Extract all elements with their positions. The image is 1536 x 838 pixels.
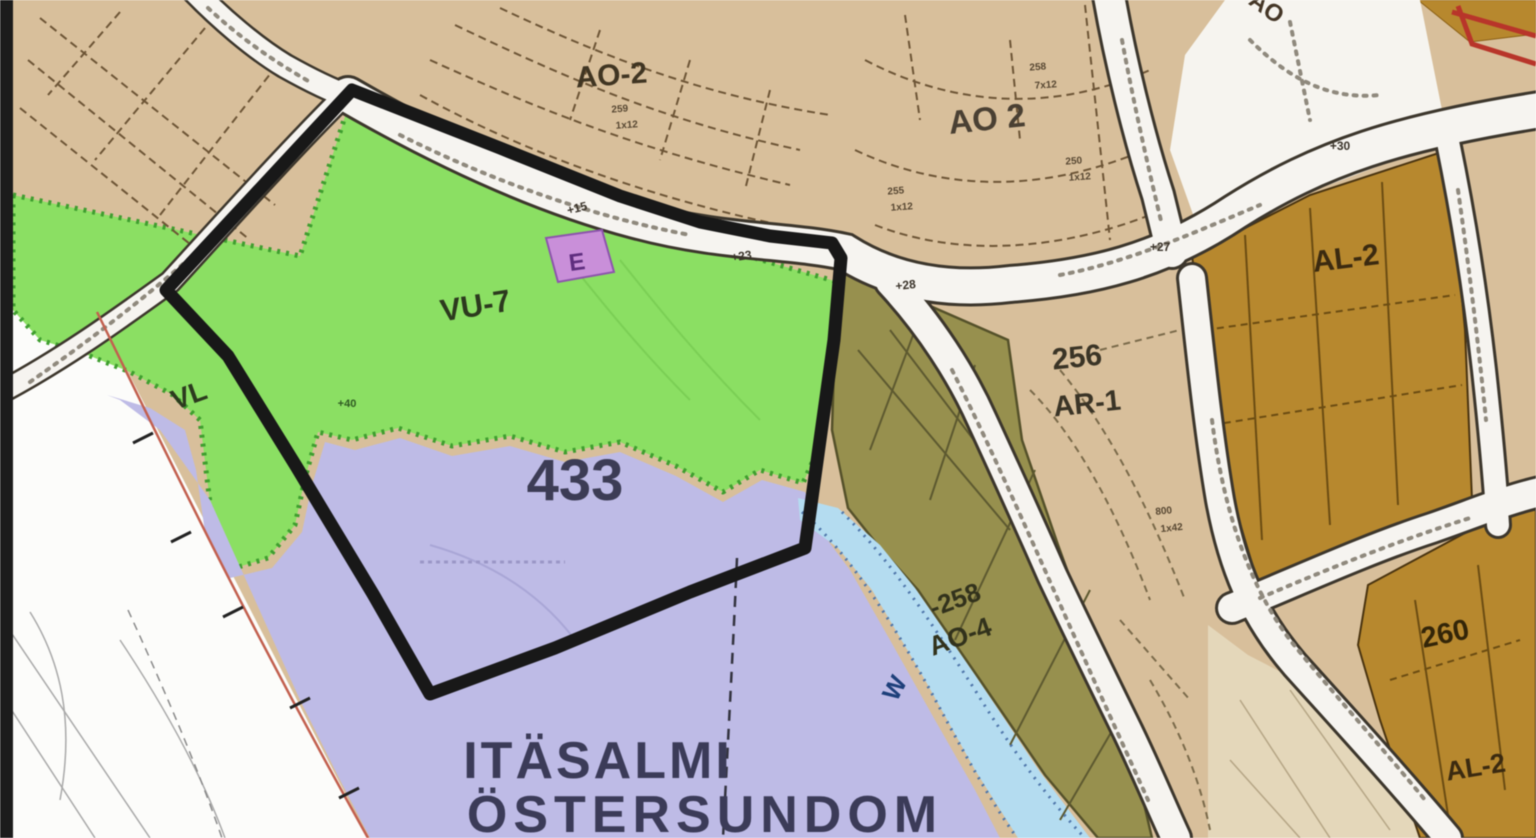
parcel-code: 1x12 xyxy=(1068,171,1091,184)
map-edge-strip xyxy=(0,0,13,838)
label-256: 256 xyxy=(1050,339,1103,377)
parcel-code: 250 xyxy=(1065,155,1083,167)
elevation-marker: +23 xyxy=(730,248,752,265)
parcel-code: 1x12 xyxy=(890,201,913,214)
elevation-marker: +27 xyxy=(1150,240,1171,254)
label-itasalmi: ITÄSALMI xyxy=(463,732,733,790)
parcel-code: 258 xyxy=(1029,61,1047,73)
label-ostersundom: ÖSTERSUNDOM xyxy=(467,786,943,838)
parcel-code: 800 xyxy=(1155,505,1173,518)
parcel-code: 7x12 xyxy=(1034,79,1057,92)
zoning-map-canvas[interactable]: AO-2 AO 2 VU-7 VL 433 256 AR-1 -258 AO-4… xyxy=(0,0,1536,838)
label-district-433: 433 xyxy=(527,448,624,513)
map-svg: AO-2 AO 2 VU-7 VL 433 256 AR-1 -258 AO-4… xyxy=(0,0,1536,838)
label-ao2-west: AO-2 xyxy=(574,57,648,95)
parcel-code: 259 xyxy=(611,103,629,115)
parcel-code: 255 xyxy=(887,185,905,197)
elevation-marker: +30 xyxy=(1330,139,1351,153)
parcel-code: 1x12 xyxy=(615,119,638,132)
elevation-marker: +40 xyxy=(338,398,357,410)
elevation-marker: +28 xyxy=(895,277,917,293)
